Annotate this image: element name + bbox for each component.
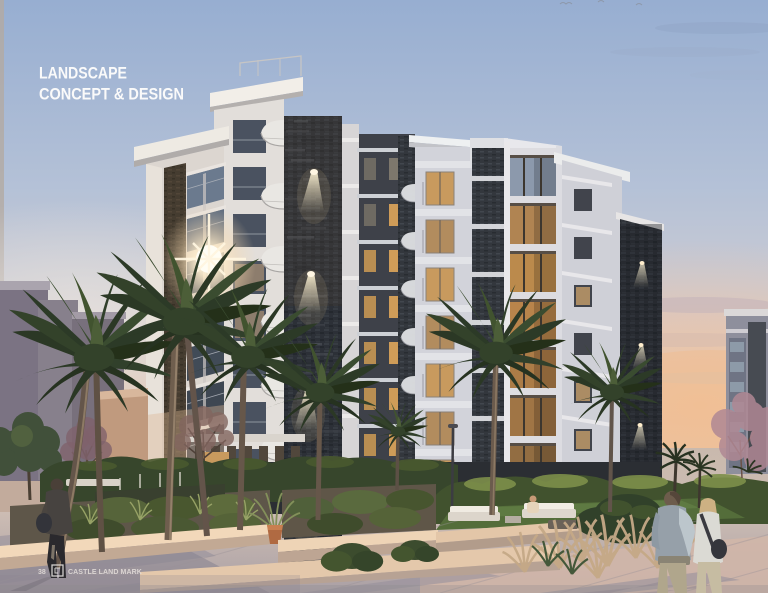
svg-text:LANDSCAPE: LANDSCAPE [39,64,127,83]
svg-text:38: 38 [38,569,46,576]
svg-text:CASTLE LAND MARK: CASTLE LAND MARK [68,569,142,576]
svg-text:CONCEPT & DESIGN: CONCEPT & DESIGN [39,85,184,104]
